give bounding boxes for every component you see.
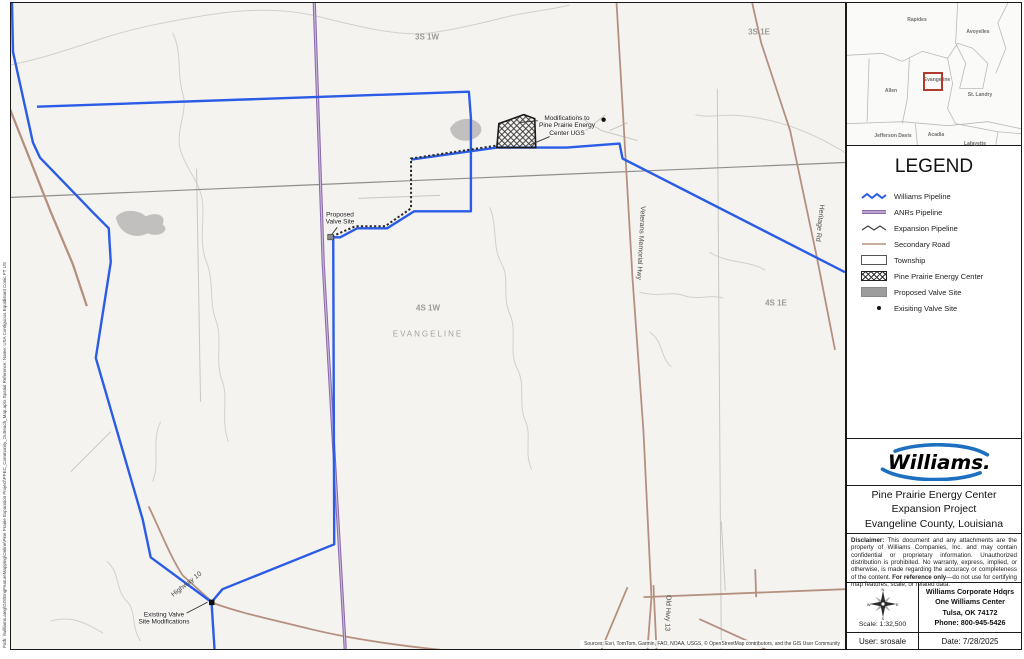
ppec-hatched-area: [497, 115, 536, 148]
legend-item-label: Pine Prairie Energy Center: [894, 272, 983, 281]
parish-label-avoyelles: Avoyelles: [966, 29, 989, 35]
address-line-1: Williams Corporate Hdqrs: [926, 587, 1014, 597]
scale-label: Scale: 1:32,500: [859, 621, 906, 628]
township-swatch-icon: [861, 255, 887, 265]
proposed-valve-marker: [328, 234, 333, 239]
legend-item-label: Exisiting Valve Site: [894, 304, 957, 313]
disclaimer: Disclaimer: This document and any attach…: [847, 534, 1021, 583]
secondary-roads: [11, 3, 845, 649]
parish-label-jefferson-davis: Jefferson Davis: [874, 133, 911, 139]
compass-rose-icon: N E S W: [867, 588, 899, 620]
legend-item-label: ANRs Pipeline: [894, 208, 942, 217]
legend-item-township: Township: [847, 252, 1021, 268]
expansion-swatch-icon: [861, 223, 887, 233]
legend-items: Williams PipelineANRs PipelineExpansion …: [847, 188, 1021, 316]
legend-panel: LEGEND Williams PipelineANRs PipelineExp…: [847, 146, 1021, 439]
legend-item-anr: ANRs Pipeline: [847, 204, 1021, 220]
svg-text:S: S: [881, 616, 884, 620]
svg-text:E: E: [895, 601, 898, 606]
title-line-2: Expansion Project: [892, 502, 977, 516]
compass-scale-cell: N E S W Scale: 1:32,500: [847, 583, 919, 632]
map-title-block: Pine Prairie Energy Center Expansion Pro…: [847, 486, 1021, 534]
ugs-valve-dot: [601, 117, 605, 121]
anr-pipeline-path: [314, 3, 345, 649]
address-line-4: Phone: 800-945-5426: [934, 618, 1005, 628]
svg-text:W: W: [867, 601, 871, 606]
legend-item-label: Williams Pipeline: [894, 192, 951, 201]
legend-item-expansion: Expansion Pipeline: [847, 220, 1021, 236]
disclaimer-label: Disclaimer:: [851, 537, 884, 544]
legend-item-proposed: Proposed Valve Site: [847, 284, 1021, 300]
williams-logo-text: Williams.: [888, 451, 991, 474]
existing-valve-marker: [209, 600, 214, 605]
water-bodies: [116, 119, 482, 236]
road-swatch-icon: [861, 239, 887, 249]
road-heritage-path: [752, 3, 835, 350]
title-line-1: Pine Prairie Energy Center: [872, 488, 997, 502]
williams-pipeline-paths: [12, 3, 845, 649]
address-line-3: Tulsa, OK 74172: [943, 608, 998, 618]
locator-inset-map: RapidesAvoyellesAllenEvangelineSt. Landr…: [847, 3, 1021, 146]
map-sheet: Path: \\williams.amg\GIS\EngFeatureMappi…: [0, 0, 1024, 659]
address-line-2: One Williams Center: [935, 597, 1005, 607]
disclaimer-ref-bold: For reference only: [892, 574, 946, 581]
title-line-3: Evangeline County, Louisiana: [865, 517, 1003, 531]
proposed-swatch-icon: [861, 287, 887, 297]
anr-swatch-icon: [861, 207, 887, 217]
existing-swatch-icon: [861, 303, 887, 313]
file-path-note: Path: \\williams.amg\GIS\EngFeatureMappi…: [2, 218, 7, 648]
svg-text:N: N: [881, 588, 884, 592]
user-date-row: User: srosale Date: 7/28/2025: [847, 633, 1021, 649]
parish-label-rapides: Rapides: [907, 17, 926, 23]
williams-logo: Williams.: [875, 443, 993, 481]
legend-item-williams: Williams Pipeline: [847, 188, 1021, 204]
ppec-swatch-icon: [861, 271, 887, 281]
map-drawing: [11, 3, 845, 649]
legend-item-label: Township: [894, 256, 925, 265]
legend-item-label: Proposed Valve Site: [894, 288, 961, 297]
parish-label-st-landry: St. Landry: [968, 92, 992, 98]
info-panel: N E S W Scale: 1:32,500 Williams Corpora…: [847, 583, 1021, 633]
road-veterans-memorial-path: [617, 3, 652, 649]
legend-item-road: Secondary Road: [847, 236, 1021, 252]
section-line: [11, 163, 845, 198]
legend-item-label: Secondary Road: [894, 240, 950, 249]
leader-lines: [187, 121, 550, 613]
locator-red-box: [923, 72, 943, 91]
map-canvas: 3S 1W3S 1E4S 1W4S 1EEVANGELINEVeterans M…: [10, 2, 846, 650]
legend-item-ppec: Pine Prairie Energy Center: [847, 268, 1021, 284]
company-address: Williams Corporate Hdqrs One Williams Ce…: [919, 583, 1021, 632]
date-label: Date: 7/28/2025: [919, 633, 1021, 649]
sidebar: RapidesAvoyellesAllenEvangelineSt. Landr…: [846, 2, 1022, 650]
parish-label-acadia: Acadia: [928, 132, 944, 138]
sources-attribution: Sources: Esri, TomTom, Garmin, FAO, NOAA…: [580, 640, 844, 648]
company-logo-panel: Williams.: [847, 439, 1021, 486]
legend-title: LEGEND: [847, 156, 1021, 178]
user-label: User: srosale: [847, 633, 919, 649]
streams: [11, 5, 845, 641]
legend-item-existing: Exisiting Valve Site: [847, 300, 1021, 316]
legend-item-label: Expansion Pipeline: [894, 224, 958, 233]
williams-swatch-icon: [861, 191, 887, 201]
parish-label-allen: Allen: [885, 88, 897, 94]
